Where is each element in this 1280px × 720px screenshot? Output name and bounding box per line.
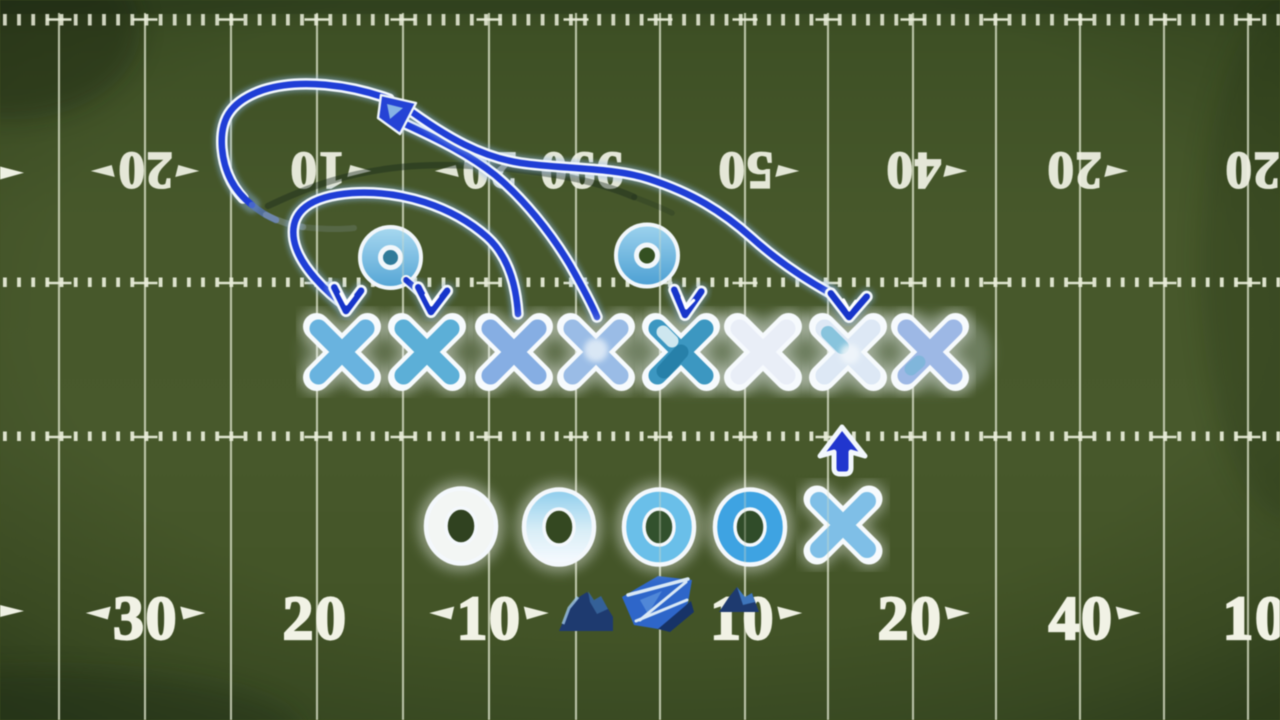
- svg-text:40: 40: [1049, 585, 1114, 653]
- svg-text:40: 40: [885, 141, 941, 199]
- svg-text:10: 10: [1223, 585, 1280, 653]
- svg-text:20: 20: [117, 141, 173, 199]
- svg-text:50: 50: [717, 141, 773, 199]
- svg-text:20: 20: [1224, 141, 1280, 199]
- svg-text:10: 10: [457, 585, 522, 653]
- svg-text:20: 20: [1046, 141, 1102, 199]
- svg-text:30: 30: [113, 585, 178, 653]
- svg-text:20: 20: [283, 585, 348, 653]
- svg-text:20: 20: [878, 585, 943, 653]
